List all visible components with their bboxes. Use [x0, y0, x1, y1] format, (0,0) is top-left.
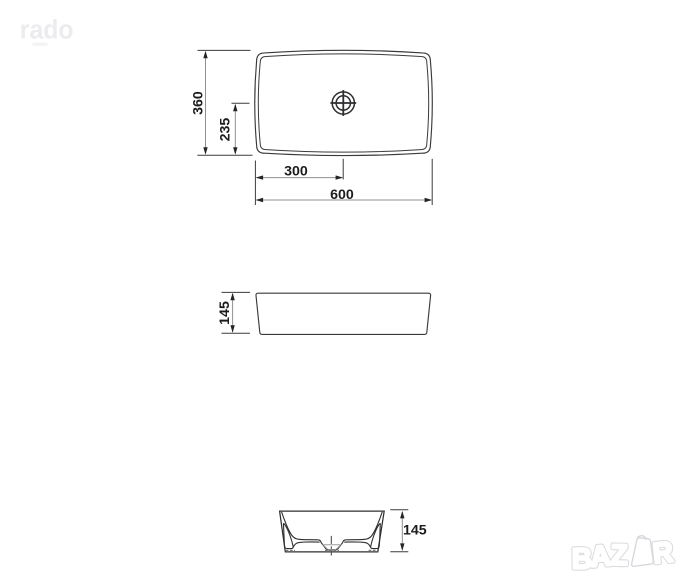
svg-text:360: 360	[190, 91, 206, 115]
svg-text:600: 600	[330, 187, 354, 203]
svg-text:rado: rado	[20, 16, 74, 45]
svg-text:145: 145	[403, 522, 427, 538]
svg-text:145: 145	[217, 301, 233, 325]
svg-text:A: A	[589, 540, 612, 574]
svg-text:Z: Z	[610, 539, 628, 572]
svg-text:235: 235	[217, 118, 233, 142]
svg-text:300: 300	[284, 164, 308, 180]
svg-text:R: R	[651, 536, 674, 571]
